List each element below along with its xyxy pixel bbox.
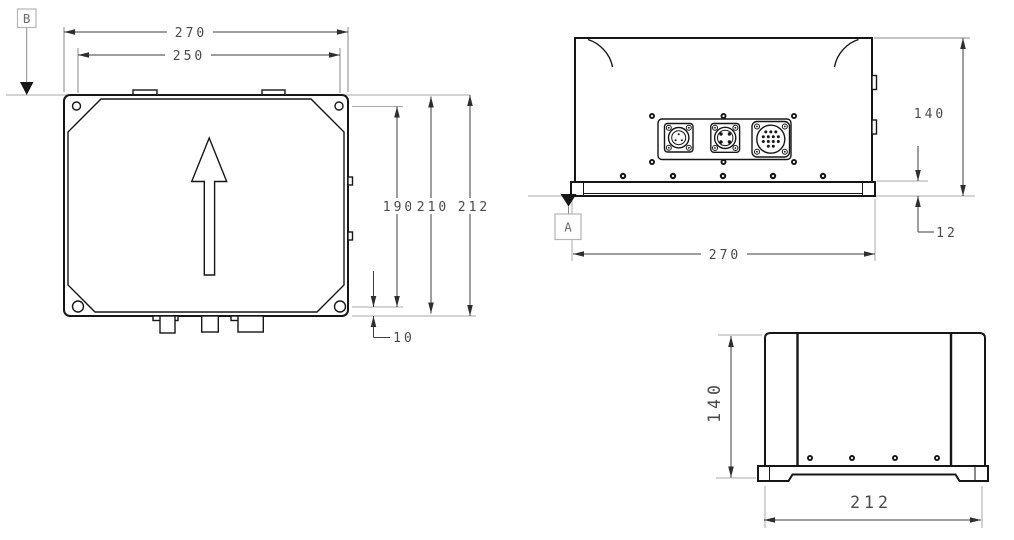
dimension-base-height: 12 [918, 146, 958, 241]
dimension-side-height: 140 [705, 336, 731, 478]
screw-icon [670, 173, 676, 179]
mounting-hole [335, 301, 346, 312]
dimension-overall-height: 212 [452, 95, 494, 316]
dimension-label-base-height: 12 [936, 226, 958, 241]
screw-icon [649, 113, 655, 119]
screw-icon [721, 159, 727, 165]
dimension-side-width: 212 [764, 493, 981, 520]
dimension-label-outer-width: 270 [175, 26, 207, 41]
screw-icon [820, 173, 826, 179]
screw-icon [934, 455, 940, 461]
multi-pin-connector [752, 122, 790, 158]
bottom-connector-stub [160, 316, 175, 333]
dimension-label-hole-offset: 10 [393, 331, 415, 346]
dimension-inner-height: 210 [411, 97, 452, 314]
base-flange [758, 466, 988, 481]
datum-b: B [18, 9, 37, 95]
datum-b-label: B [23, 11, 31, 26]
dimension-label-hole-span: 190 [383, 200, 415, 215]
dimension-top-outer-width: 270 [64, 24, 348, 41]
screw-icon [620, 173, 626, 179]
top-view-part-outline [64, 90, 353, 333]
screw-icon [649, 159, 655, 165]
datum-a-label: A [564, 220, 572, 235]
screw-icon [849, 455, 855, 461]
power-connector-4pin [711, 124, 740, 153]
dimension-label-inner-width: 250 [173, 49, 205, 64]
mounting-hole [73, 102, 81, 110]
bottom-connector-stub [202, 316, 219, 332]
engineering-drawing-canvas: B 270 250 190 210 212 [0, 0, 1014, 540]
screw-icon [892, 455, 898, 461]
screw-icon [720, 173, 726, 179]
mounting-hole [73, 301, 84, 312]
drawing-svg: B 270 250 190 210 212 [0, 0, 1014, 540]
screw-icon [791, 159, 797, 165]
power-connector-3pin [665, 124, 694, 153]
datum-a: A [555, 194, 581, 240]
dimension-hole-edge-offset: 10 [374, 271, 415, 346]
bottom-connector-stub [238, 316, 263, 332]
dimension-label-front-height: 140 [914, 107, 946, 122]
dimension-label-overall-height: 212 [458, 200, 490, 215]
dimension-label-side-width: 212 [850, 493, 892, 512]
dimension-label-inner-height: 210 [417, 200, 449, 215]
connector-panel [658, 119, 791, 160]
front-view: A 140 12 270 [528, 38, 975, 263]
screw-icon [791, 113, 797, 119]
mounting-hole [335, 102, 343, 110]
dimension-top-inner-width: 250 [78, 47, 340, 64]
screw-icon [770, 173, 776, 179]
top-view: B 270 250 190 210 212 [6, 9, 494, 346]
side-view-part-outline [758, 333, 988, 481]
screw-icon [807, 455, 813, 461]
dimension-front-height: 140 [914, 38, 963, 196]
side-view: 140 212 [705, 333, 988, 528]
screw-icon [721, 113, 727, 119]
datum-triangle-icon [20, 82, 34, 95]
dimension-label-front-width: 270 [709, 248, 741, 263]
dimension-front-width: 270 [573, 246, 875, 263]
datum-triangle-icon [561, 194, 577, 207]
dimension-label-side-height: 140 [705, 381, 724, 423]
